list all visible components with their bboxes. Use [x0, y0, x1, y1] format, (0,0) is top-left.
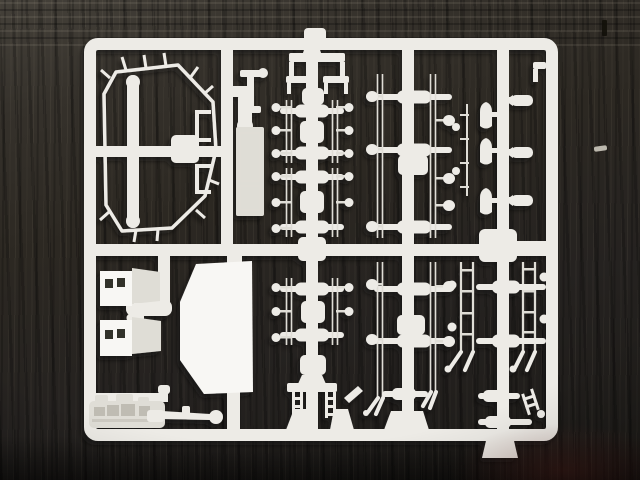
periscope-part — [227, 68, 268, 134]
tilted-bracket-part — [521, 388, 541, 415]
bullet-part — [480, 102, 499, 215]
bracket-bar-part — [289, 53, 345, 62]
sprue-top-tab — [304, 28, 326, 46]
photo-model-kit-sprue — [0, 0, 640, 480]
edge-hook-part — [533, 62, 546, 69]
long-beam-part — [127, 75, 139, 228]
sprue-bottom-tab — [482, 441, 518, 458]
ski-part — [344, 386, 363, 403]
gun-muzzle-part — [209, 410, 223, 424]
hull-plate-part — [180, 252, 253, 394]
sprue — [84, 28, 553, 458]
middle-column-parts — [272, 50, 355, 430]
capsule-part — [505, 95, 533, 206]
hatch-plate-part — [236, 127, 264, 216]
bracket-part — [197, 112, 211, 140]
sprue-drawing — [0, 0, 640, 480]
octagon-center-clip — [171, 135, 199, 163]
